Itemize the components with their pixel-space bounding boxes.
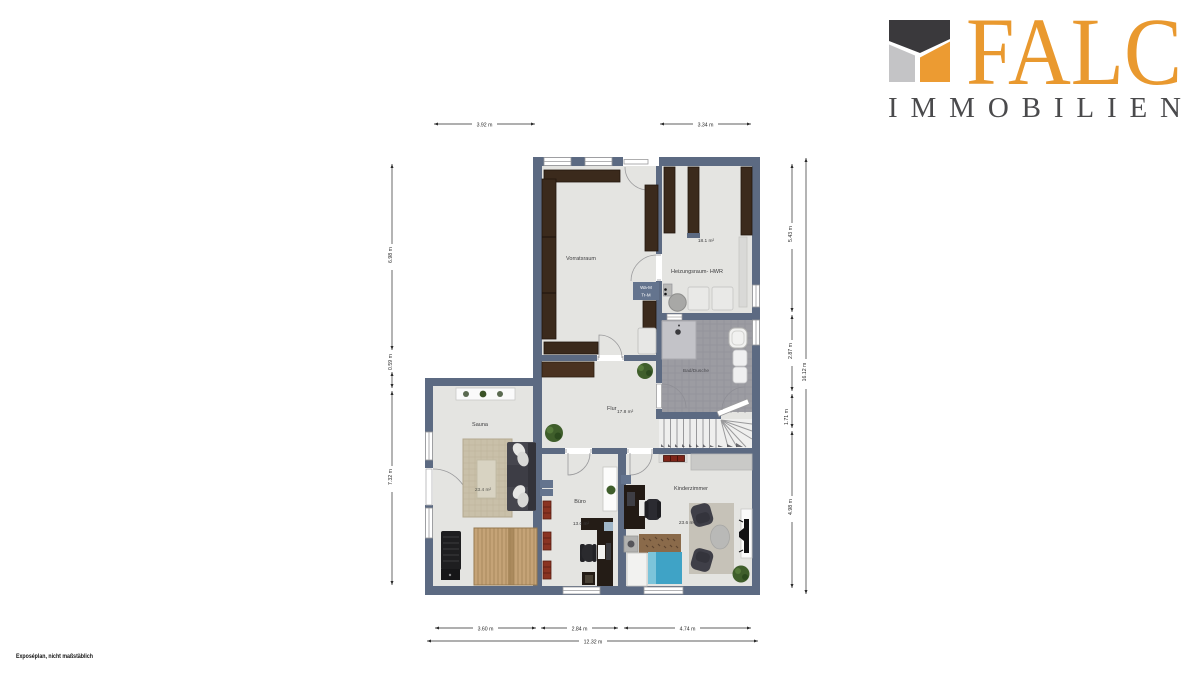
svg-text:Bad/Dusche: Bad/Dusche — [683, 368, 709, 374]
svg-text:18.1 m²: 18.1 m² — [698, 238, 715, 244]
svg-text:Vorratsraum: Vorratsraum — [566, 256, 596, 262]
svg-text:23.6 m²: 23.6 m² — [679, 520, 696, 526]
svg-text:FALC: FALC — [966, 0, 1182, 105]
svg-text:23.4 m²: 23.4 m² — [475, 487, 492, 493]
svg-text:Tr-M: Tr-M — [641, 293, 651, 298]
svg-text:4.74 m: 4.74 m — [680, 627, 696, 633]
svg-text:Büro: Büro — [574, 499, 586, 505]
svg-text:3.60 m: 3.60 m — [478, 627, 494, 633]
svg-text:6.98 m: 6.98 m — [388, 247, 394, 263]
svg-text:Heizungsraum- HWR: Heizungsraum- HWR — [671, 269, 723, 275]
svg-text:2.84 m: 2.84 m — [572, 627, 588, 633]
svg-text:7.32 m: 7.32 m — [388, 469, 394, 485]
svg-text:Exposéplan, nicht maßstäblich: Exposéplan, nicht maßstäblich — [16, 653, 93, 660]
svg-text:5.43 m: 5.43 m — [788, 226, 794, 242]
svg-text:Flur: Flur — [607, 406, 617, 412]
svg-text:0.59 m: 0.59 m — [388, 354, 394, 370]
svg-text:17.8 m²: 17.8 m² — [617, 409, 634, 415]
svg-text:Sauna: Sauna — [472, 422, 489, 428]
svg-text:1.71 m: 1.71 m — [784, 409, 790, 425]
svg-text:2.87 m: 2.87 m — [788, 343, 794, 359]
svg-text:Kinderzimmer: Kinderzimmer — [674, 486, 708, 492]
svg-text:16.12 m: 16.12 m — [802, 363, 808, 382]
svg-text:Wa-M: Wa-M — [640, 285, 652, 290]
svg-text:4.98 m: 4.98 m — [788, 499, 794, 515]
svg-text:3.92 m: 3.92 m — [477, 123, 493, 129]
svg-text:3.34 m: 3.34 m — [698, 123, 714, 129]
svg-text:IMMOBILIEN: IMMOBILIEN — [888, 92, 1181, 124]
svg-text:13.0 m²: 13.0 m² — [573, 521, 590, 527]
svg-text:12.32 m: 12.32 m — [584, 640, 603, 646]
